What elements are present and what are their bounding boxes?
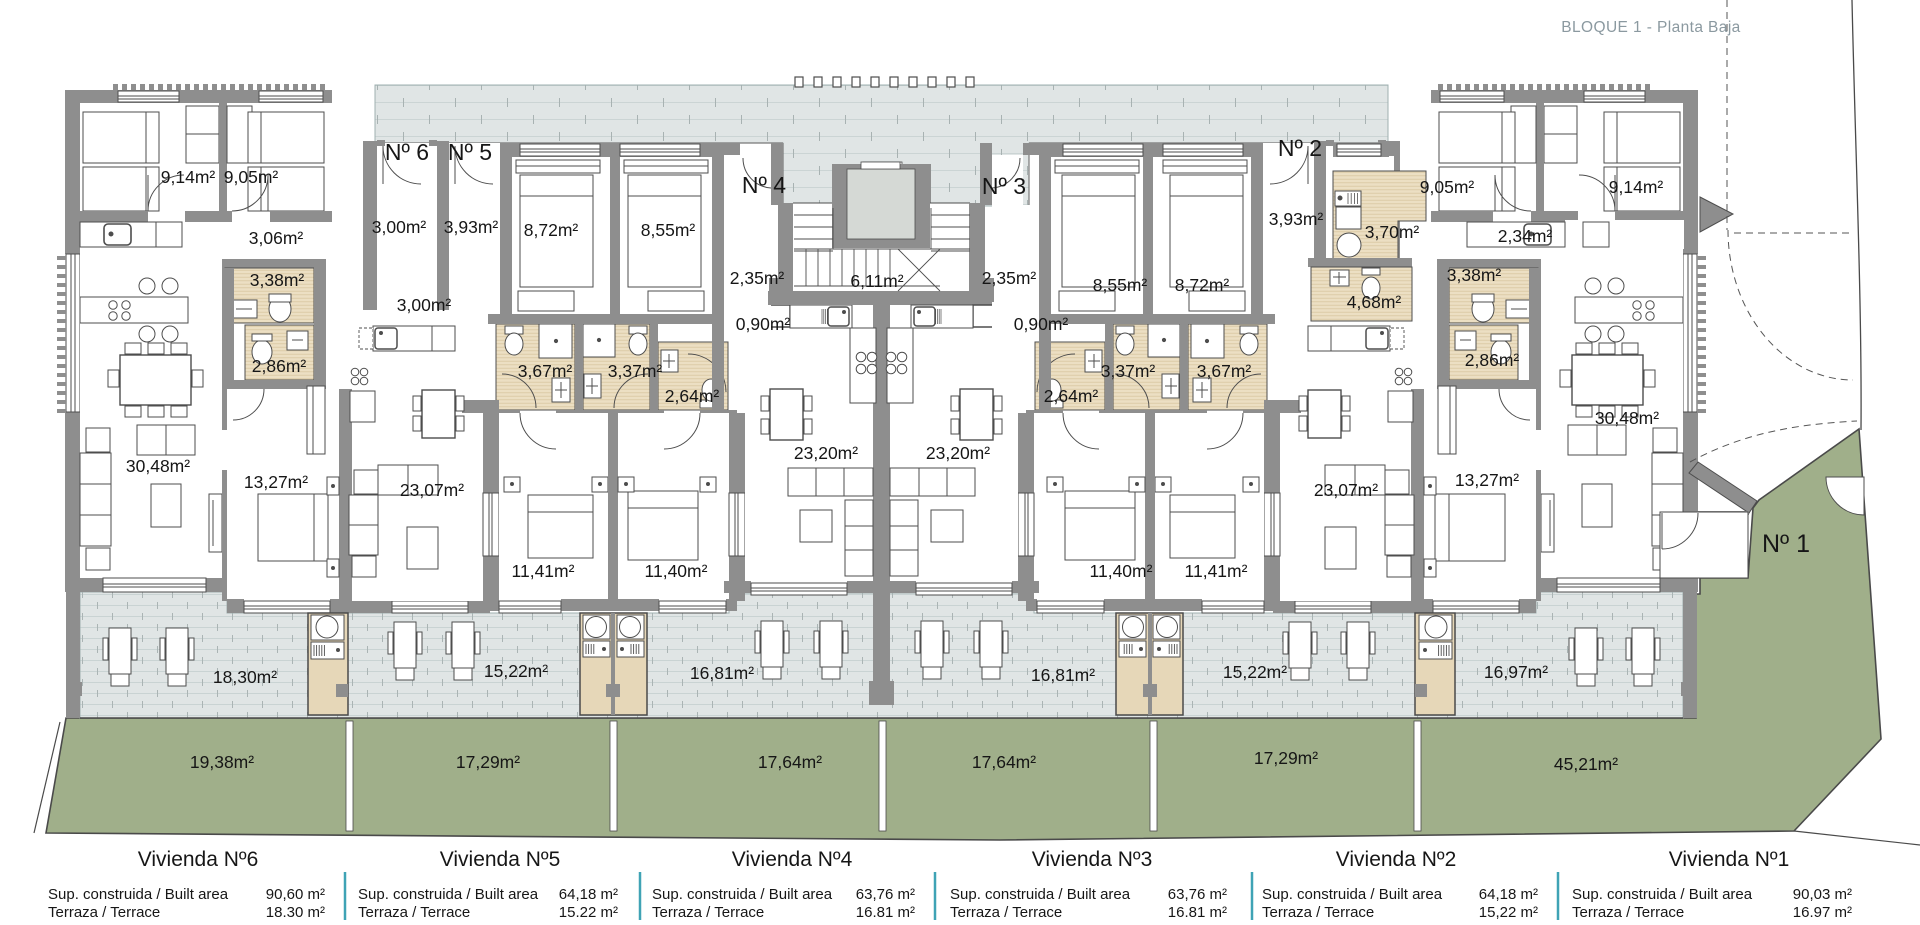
svg-text:23,07m²: 23,07m²	[400, 480, 464, 500]
svg-text:23,20m²: 23,20m²	[926, 443, 990, 463]
svg-text:45,21m²: 45,21m²	[1554, 754, 1618, 774]
svg-text:63,76 m²: 63,76 m²	[1168, 886, 1227, 903]
svg-text:8,55m²: 8,55m²	[641, 220, 696, 240]
svg-text:18.30 m²: 18.30 m²	[266, 904, 325, 920]
svg-text:Terraza / Terrace: Terraza / Terrace	[48, 904, 160, 920]
svg-text:Nº 1: Nº 1	[1762, 530, 1810, 558]
svg-text:0,90m²: 0,90m²	[736, 314, 791, 334]
svg-text:11,40m²: 11,40m²	[645, 561, 708, 581]
svg-text:Terraza / Terrace: Terraza / Terrace	[950, 904, 1062, 920]
svg-text:3,70m²: 3,70m²	[1365, 222, 1420, 242]
svg-text:Terraza / Terrace: Terraza / Terrace	[652, 904, 764, 920]
svg-text:63,76 m²: 63,76 m²	[856, 886, 915, 903]
svg-text:19,38m²: 19,38m²	[190, 752, 254, 772]
svg-text:15,22 m²: 15,22 m²	[1479, 904, 1538, 920]
svg-text:Terraza / Terrace: Terraza / Terrace	[1262, 904, 1374, 920]
svg-text:23,07m²: 23,07m²	[1314, 480, 1378, 500]
svg-text:Terraza / Terrace: Terraza / Terrace	[358, 904, 470, 920]
svg-text:15.22 m²: 15.22 m²	[559, 904, 618, 920]
svg-text:11,41m²: 11,41m²	[1185, 561, 1248, 581]
svg-text:Nº 2: Nº 2	[1278, 135, 1322, 161]
svg-text:9,14m²: 9,14m²	[1609, 177, 1664, 197]
svg-text:2,86m²: 2,86m²	[252, 356, 307, 376]
svg-text:16,97m²: 16,97m²	[1484, 662, 1548, 682]
svg-text:64,18 m²: 64,18 m²	[1479, 886, 1538, 903]
svg-text:16,81m²: 16,81m²	[690, 663, 754, 683]
svg-text:Nº 5: Nº 5	[448, 139, 492, 165]
svg-text:Sup. construida / Built area: Sup. construida / Built area	[1262, 886, 1443, 903]
svg-text:3,06m²: 3,06m²	[249, 228, 304, 248]
svg-text:8,72m²: 8,72m²	[524, 220, 579, 240]
svg-text:6,11m²: 6,11m²	[850, 271, 903, 291]
svg-text:Sup. construida / Built area: Sup. construida / Built area	[1572, 886, 1753, 903]
svg-text:3,00m²: 3,00m²	[372, 217, 427, 237]
svg-text:4,68m²: 4,68m²	[1347, 292, 1402, 312]
svg-text:2,64m²: 2,64m²	[1044, 386, 1099, 406]
svg-text:9,05m²: 9,05m²	[224, 167, 279, 187]
svg-text:3,37m²: 3,37m²	[608, 361, 663, 381]
svg-text:3,38m²: 3,38m²	[250, 270, 305, 290]
svg-text:30,48m²: 30,48m²	[1595, 408, 1659, 428]
svg-text:90,60 m²: 90,60 m²	[266, 886, 325, 903]
svg-text:16.81 m²: 16.81 m²	[856, 904, 915, 920]
svg-text:3,93m²: 3,93m²	[1269, 209, 1324, 229]
svg-text:13,27m²: 13,27m²	[244, 472, 308, 492]
svg-text:23,20m²: 23,20m²	[794, 443, 858, 463]
svg-text:15,22m²: 15,22m²	[1223, 662, 1287, 682]
svg-text:8,72m²: 8,72m²	[1175, 275, 1230, 295]
svg-text:3,93m²: 3,93m²	[444, 217, 499, 237]
svg-text:3,38m²: 3,38m²	[1447, 265, 1502, 285]
svg-text:Sup. construida / Built area: Sup. construida / Built area	[652, 886, 833, 903]
svg-text:Vivienda Nº6: Vivienda Nº6	[138, 848, 259, 871]
svg-text:11,40m²: 11,40m²	[1090, 561, 1153, 581]
svg-text:3,37m²: 3,37m²	[1101, 361, 1156, 381]
svg-text:Vivienda Nº3: Vivienda Nº3	[1032, 848, 1153, 871]
svg-text:BLOQUE 1 - Planta Baja: BLOQUE 1 - Planta Baja	[1561, 19, 1740, 36]
svg-text:2,34m²: 2,34m²	[1498, 226, 1553, 246]
svg-text:30,48m²: 30,48m²	[126, 456, 190, 476]
svg-text:15,22m²: 15,22m²	[484, 661, 548, 681]
svg-text:Nº 6: Nº 6	[385, 139, 429, 165]
svg-text:9,05m²: 9,05m²	[1420, 177, 1475, 197]
svg-text:8,55m²: 8,55m²	[1093, 275, 1148, 295]
svg-text:9,14m²: 9,14m²	[161, 167, 216, 187]
svg-text:2,64m²: 2,64m²	[665, 386, 720, 406]
svg-text:Nº 4: Nº 4	[742, 172, 786, 198]
svg-text:Sup. construida / Built area: Sup. construida / Built area	[950, 886, 1131, 903]
svg-text:17,64m²: 17,64m²	[758, 752, 822, 772]
svg-text:0,90m²: 0,90m²	[1014, 314, 1069, 334]
svg-text:16.97 m²: 16.97 m²	[1793, 904, 1852, 920]
svg-text:17,29m²: 17,29m²	[456, 752, 520, 772]
svg-text:3,67m²: 3,67m²	[518, 361, 573, 381]
svg-text:Nº 3: Nº 3	[982, 173, 1026, 199]
svg-text:2,35m²: 2,35m²	[982, 268, 1037, 288]
svg-text:Vivienda Nº2: Vivienda Nº2	[1336, 848, 1457, 871]
svg-text:17,29m²: 17,29m²	[1254, 748, 1318, 768]
svg-text:2,35m²: 2,35m²	[730, 268, 785, 288]
svg-text:90,03 m²: 90,03 m²	[1793, 886, 1852, 903]
svg-text:16.81 m²: 16.81 m²	[1168, 904, 1227, 920]
svg-text:18,30m²: 18,30m²	[213, 667, 277, 687]
svg-text:13,27m²: 13,27m²	[1455, 470, 1519, 490]
svg-text:3,67m²: 3,67m²	[1197, 361, 1252, 381]
svg-text:Terraza / Terrace: Terraza / Terrace	[1572, 904, 1684, 920]
svg-text:Sup. construida / Built area: Sup. construida / Built area	[48, 886, 229, 903]
svg-text:Sup. construida / Built area: Sup. construida / Built area	[358, 886, 539, 903]
svg-text:3,00m²: 3,00m²	[397, 295, 452, 315]
svg-text:Vivienda Nº5: Vivienda Nº5	[440, 848, 561, 871]
svg-text:11,41m²: 11,41m²	[512, 561, 575, 581]
svg-text:Vivienda Nº4: Vivienda Nº4	[732, 848, 853, 871]
svg-text:16,81m²: 16,81m²	[1031, 665, 1095, 685]
svg-text:17,64m²: 17,64m²	[972, 752, 1036, 772]
svg-text:2,86m²: 2,86m²	[1465, 350, 1520, 370]
svg-text:64,18 m²: 64,18 m²	[559, 886, 618, 903]
svg-text:Vivienda Nº1: Vivienda Nº1	[1669, 848, 1790, 871]
